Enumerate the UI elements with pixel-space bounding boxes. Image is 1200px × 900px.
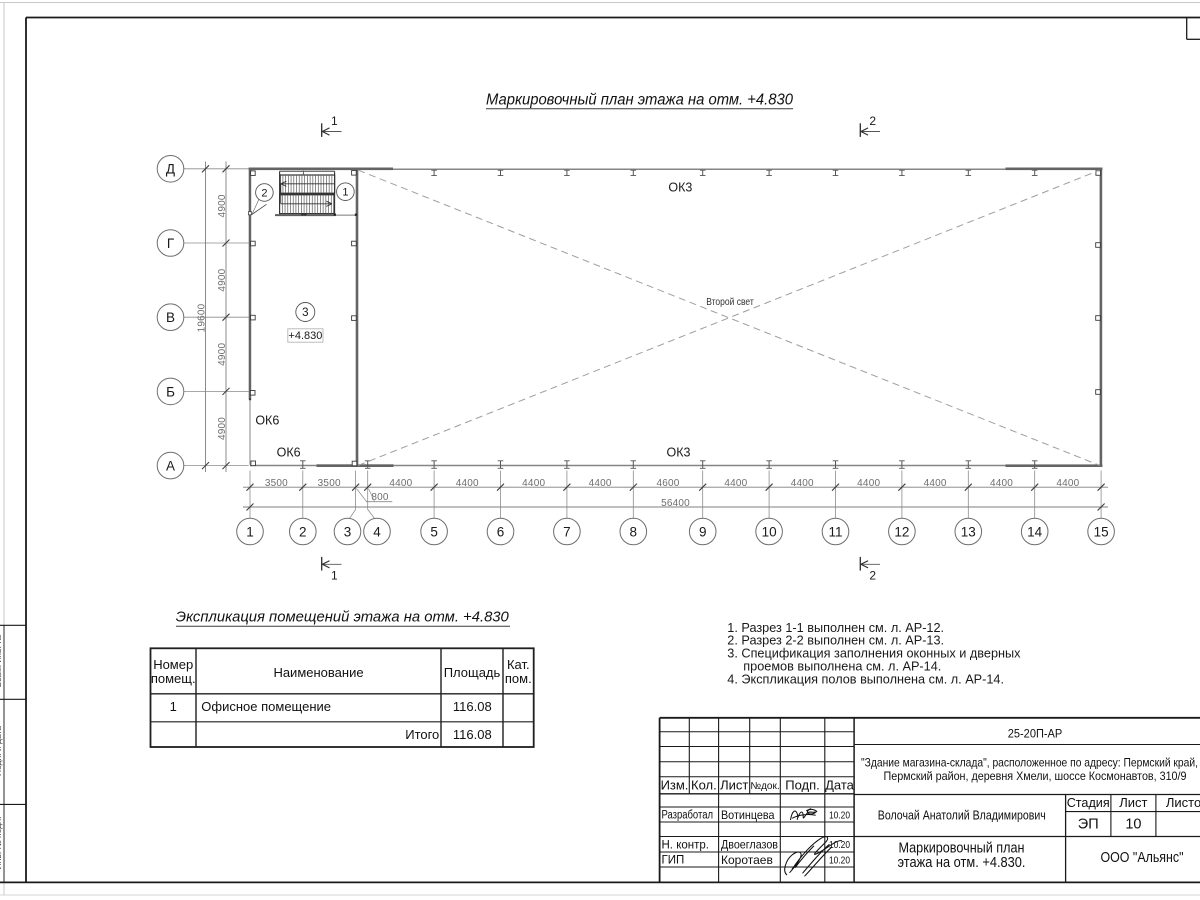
svg-text:Кат.: Кат. [507, 657, 530, 672]
svg-text:4: 4 [373, 524, 381, 539]
svg-text:Г: Г [167, 236, 175, 251]
svg-text:116.08: 116.08 [453, 699, 492, 714]
svg-text:2: 2 [869, 114, 876, 128]
svg-text:ООО "Альянс": ООО "Альянс" [1101, 850, 1184, 866]
svg-text:12: 12 [894, 524, 909, 539]
svg-text:15: 15 [1094, 524, 1109, 539]
svg-text:ЭП: ЭП [1078, 817, 1099, 833]
svg-text:помещ.: помещ. [151, 671, 196, 686]
svg-text:Волочай Анатолий Владимирович: Волочай Анатолий Владимирович [878, 808, 1046, 822]
svg-text:Лист: Лист [1119, 795, 1147, 810]
svg-text:Наименование: Наименование [273, 665, 363, 680]
svg-text:10.20: 10.20 [829, 809, 850, 821]
svg-text:3500: 3500 [318, 478, 341, 489]
svg-text:11: 11 [828, 524, 842, 539]
svg-text:3. Спецификация заполнения око: 3. Спецификация заполнения оконных и две… [727, 647, 1021, 661]
svg-text:Маркировочный план этажа на от: Маркировочный план этажа на отм. +4.830 [486, 92, 793, 109]
svg-text:Площадь: Площадь [444, 665, 501, 680]
svg-text:1: 1 [342, 187, 348, 199]
svg-text:Подп. и дата: Подп. и дата [0, 726, 3, 776]
svg-text:Подп.: Подп. [785, 778, 820, 793]
svg-text:4600: 4600 [656, 478, 679, 489]
svg-text:пом.: пом. [505, 671, 532, 686]
svg-text:Итого: Итого [405, 727, 439, 742]
svg-text:Лист: Лист [720, 778, 748, 793]
svg-text:10: 10 [762, 524, 777, 539]
svg-text:1: 1 [246, 524, 254, 539]
svg-text:1: 1 [331, 569, 338, 583]
svg-text:Коротаев: Коротаев [721, 853, 773, 867]
svg-text:Изм.: Изм. [661, 778, 689, 793]
svg-text:6: 6 [497, 524, 505, 539]
svg-text:этажа на отм. +4.830.: этажа на отм. +4.830. [898, 855, 1026, 871]
svg-text:Стадия: Стадия [1067, 795, 1110, 810]
svg-text:Офисное помещение: Офисное помещение [201, 699, 331, 714]
svg-text:+4.830: +4.830 [288, 330, 322, 342]
svg-text:19600: 19600 [197, 303, 208, 332]
svg-text:4400: 4400 [456, 478, 479, 489]
svg-text:Н. контр.: Н. контр. [662, 839, 709, 851]
svg-text:Вотинцева: Вотинцева [721, 808, 775, 822]
svg-text:13: 13 [961, 524, 976, 539]
svg-text:4900: 4900 [217, 194, 228, 217]
svg-text:Д: Д [166, 162, 175, 177]
svg-text:4400: 4400 [1056, 478, 1079, 489]
svg-text:4400: 4400 [791, 478, 814, 489]
svg-text:8: 8 [630, 524, 638, 539]
svg-text:3: 3 [344, 524, 352, 539]
svg-text:3: 3 [302, 307, 308, 319]
svg-text:№док.: №док. [750, 781, 779, 792]
svg-text:Экспликация помещений этажа на: Экспликация помещений этажа на отм. +4.8… [176, 609, 510, 626]
svg-text:4400: 4400 [724, 478, 747, 489]
svg-text:Инв. № подл.: Инв. № подл. [0, 817, 3, 870]
svg-text:4400: 4400 [857, 478, 880, 489]
svg-text:В: В [166, 310, 175, 325]
svg-text:ОК3: ОК3 [668, 181, 692, 195]
svg-text:Листов: Листов [1166, 795, 1200, 810]
svg-text:ОК6: ОК6 [255, 414, 279, 428]
svg-text:Маркировочный план: Маркировочный план [899, 840, 1025, 856]
svg-text:9: 9 [699, 524, 707, 539]
svg-text:4400: 4400 [990, 478, 1013, 489]
svg-text:4400: 4400 [522, 478, 545, 489]
svg-text:А: А [166, 459, 175, 474]
svg-text:Кол.: Кол. [691, 778, 717, 793]
svg-text:4400: 4400 [924, 478, 947, 489]
svg-text:25-20П-АР: 25-20П-АР [1008, 726, 1063, 740]
svg-text:проемов выполнена см. л. АР-14: проемов выполнена см. л. АР-14. [743, 660, 941, 674]
svg-text:5: 5 [430, 524, 438, 539]
svg-text:Второй свет: Второй свет [706, 296, 754, 308]
svg-text:10: 10 [1125, 817, 1141, 833]
svg-text:Двоеглазов: Двоеглазов [721, 838, 778, 852]
svg-text:2: 2 [299, 524, 307, 539]
svg-text:14: 14 [1027, 524, 1043, 539]
svg-text:4900: 4900 [217, 268, 228, 291]
svg-text:Номер: Номер [153, 657, 193, 672]
svg-text:Дата: Дата [825, 778, 855, 793]
svg-text:56400: 56400 [661, 498, 690, 509]
svg-text:2: 2 [869, 569, 876, 583]
svg-text:116.08: 116.08 [453, 727, 492, 742]
svg-text:2: 2 [261, 188, 267, 200]
svg-text:4400: 4400 [389, 478, 412, 489]
svg-text:3500: 3500 [265, 478, 288, 489]
svg-text:ОК3: ОК3 [667, 445, 691, 459]
svg-text:1. Разрез 1-1 выполнен см. л.: 1. Разрез 1-1 выполнен см. л. АР-12. [727, 621, 944, 635]
svg-text:7: 7 [563, 524, 571, 539]
svg-text:ОК6: ОК6 [277, 445, 301, 459]
svg-text:Разработал: Разработал [662, 810, 714, 822]
svg-text:Взам. инв. №: Взам. инв. № [0, 635, 3, 688]
svg-text:10.20: 10.20 [829, 854, 850, 866]
svg-text:1: 1 [331, 114, 338, 128]
svg-text:4900: 4900 [217, 343, 228, 366]
svg-text:4400: 4400 [589, 478, 612, 489]
svg-text:Б: Б [166, 384, 175, 399]
svg-text:4900: 4900 [217, 417, 228, 440]
svg-text:4. Экспликация полов выполнена: 4. Экспликация полов выполнена см. л. АР… [727, 672, 1004, 686]
svg-text:Пермский район, деревня Хмели,: Пермский район, деревня Хмели, шоссе Кос… [884, 769, 1187, 783]
svg-text:2. Разрез 2-2 выполнен см. л.: 2. Разрез 2-2 выполнен см. л. АР-13. [727, 634, 944, 648]
svg-text:1: 1 [170, 699, 177, 714]
svg-text:"Здание магазина-склада", расп: "Здание магазина-склада", расположенное … [861, 756, 1198, 770]
svg-text:ГИП: ГИП [662, 855, 685, 867]
